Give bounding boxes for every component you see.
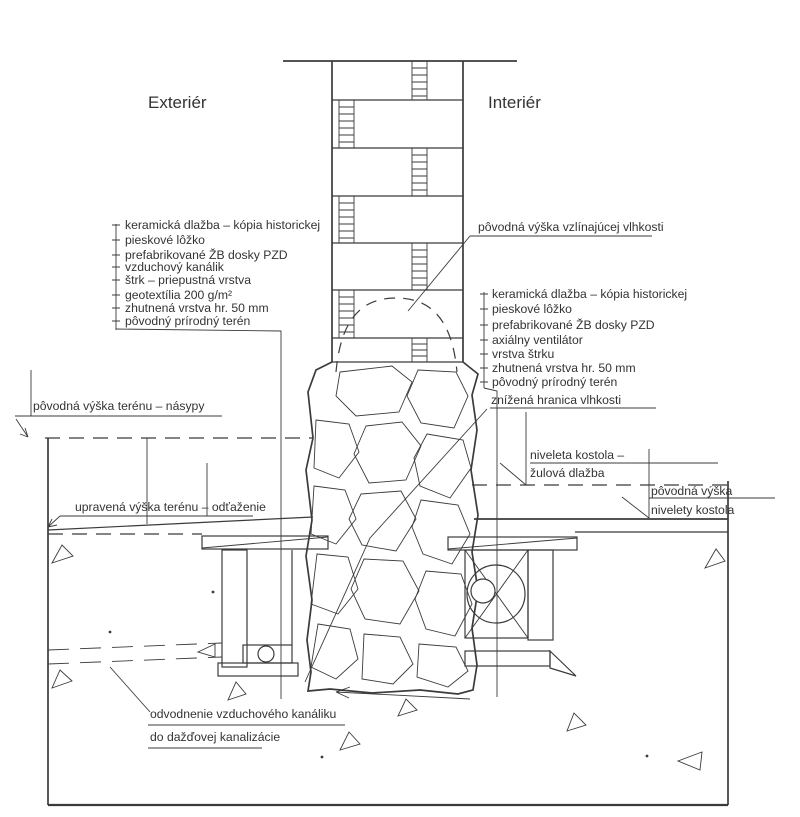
technical-section-drawing: Exteriér Interiér xyxy=(0,0,800,817)
left-label-4: štrk – priepustná vrstva xyxy=(125,273,251,287)
drain-pipe-section xyxy=(258,646,274,662)
right-label-1: pieskové lôžko xyxy=(492,302,572,316)
drainage-label-line2: do dažďovej kanalizácie xyxy=(150,730,280,744)
left-label-6: zhutnená vrstva hr. 50 mm xyxy=(125,301,269,315)
left-label-7: pôvodný prírodný terén xyxy=(125,314,250,328)
moisture-bottom-label: znížená hranica vlhkosti xyxy=(491,393,621,407)
drainage-label-line1: odvodnenie vzduchového kanáliku xyxy=(150,707,336,721)
right-label-0: keramická dlažba – kópia historickej xyxy=(492,287,687,301)
right-label-6: pôvodný prírodný terén xyxy=(492,375,617,389)
left-label-1: pieskové lôžko xyxy=(125,233,205,247)
original-level-label-line2: nivelety kostola xyxy=(651,503,735,517)
left-label-5: geotextília 200 g/m² xyxy=(125,288,232,302)
right-label-3: axiálny ventilátor xyxy=(492,333,583,347)
original-level-label-line1: pôvodná výška xyxy=(651,484,733,498)
modified-terrain-label: upravená výška terénu – odťaženie xyxy=(75,500,266,514)
church-level-label-line2: žulová dlažba xyxy=(530,466,605,480)
moisture-top-label: pôvodná výška vzlínajúcej vlhkosti xyxy=(478,220,664,234)
original-terrain-label: pôvodná výška terénu – násypy xyxy=(33,399,205,413)
wall-foundation-section-svg: Exteriér Interiér xyxy=(0,0,800,817)
exterior-heading: Exteriér xyxy=(148,93,207,112)
left-label-0: keramická dlažba – kópia historickej xyxy=(125,218,320,232)
left-label-3: vzduchový kanálik xyxy=(125,260,225,274)
church-level-label-line1: niveleta kostola – xyxy=(530,448,624,462)
right-label-2: prefabrikované ŽB dosky PZD xyxy=(492,317,655,332)
right-label-5: zhutnená vrstva hr. 50 mm xyxy=(492,361,636,375)
right-label-4: vrstva štrku xyxy=(492,347,554,361)
interior-heading: Interiér xyxy=(488,93,541,112)
